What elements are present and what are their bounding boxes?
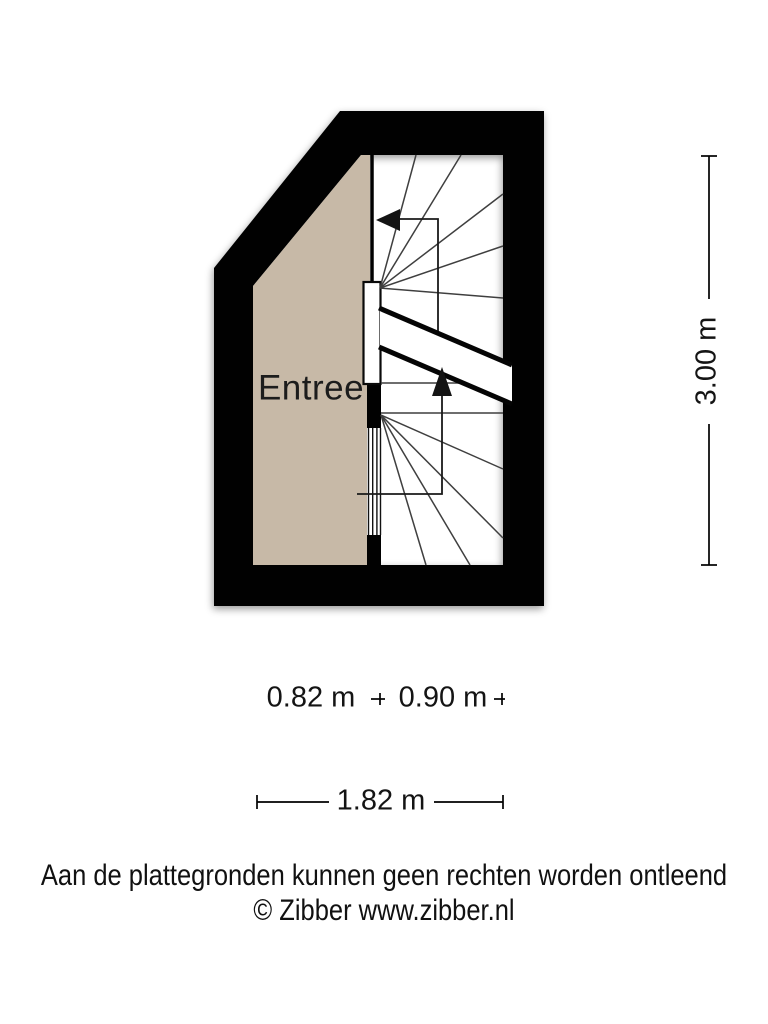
left-arrow-icon bbox=[376, 209, 400, 231]
dim-width-total-label: 1.82 m bbox=[337, 787, 426, 816]
dim-width-right-label: 0.90 m bbox=[399, 684, 488, 713]
door bbox=[367, 428, 381, 535]
wall-stub-above-door bbox=[367, 384, 381, 428]
stair-spine-post bbox=[364, 282, 381, 384]
dim-height-label: 3.00 m bbox=[693, 317, 722, 406]
disclaimer-text: Aan de plattegronden kunnen geen rechten… bbox=[41, 861, 727, 891]
copyright-text: © Zibber www.zibber.nl bbox=[253, 896, 514, 926]
dim-width-left-label: 0.82 m bbox=[267, 684, 356, 713]
wall-stub-below-door bbox=[367, 535, 381, 565]
room-label: Entree bbox=[258, 371, 364, 406]
